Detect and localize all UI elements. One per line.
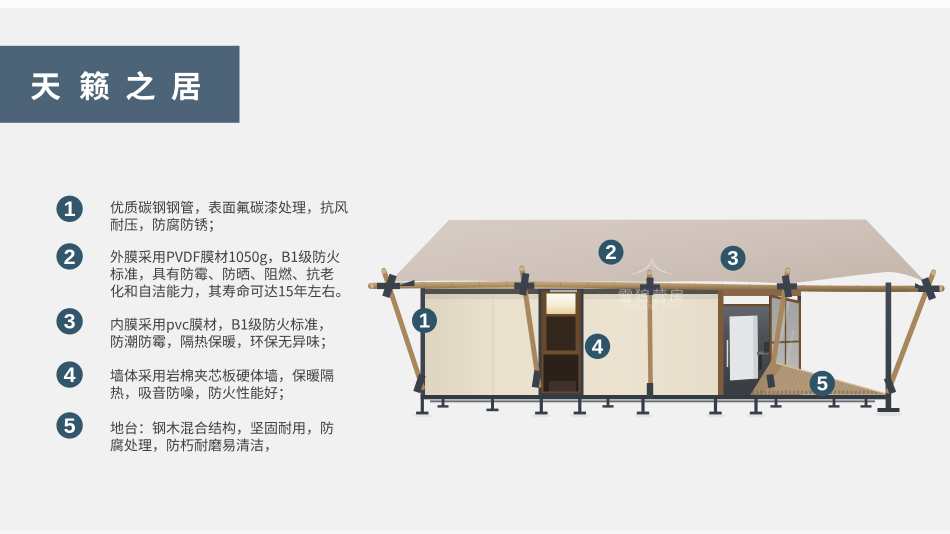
svg-text:1: 1	[64, 197, 76, 221]
svg-text:5: 5	[64, 414, 76, 438]
svg-text:4: 4	[592, 335, 604, 358]
svg-text:2: 2	[64, 245, 76, 269]
svg-text:1: 1	[419, 310, 430, 333]
svg-text:3: 3	[727, 247, 738, 270]
svg-text:2: 2	[605, 241, 616, 264]
svg-text:4: 4	[64, 363, 76, 387]
svg-text:5: 5	[817, 373, 828, 396]
svg-text:3: 3	[64, 310, 76, 334]
